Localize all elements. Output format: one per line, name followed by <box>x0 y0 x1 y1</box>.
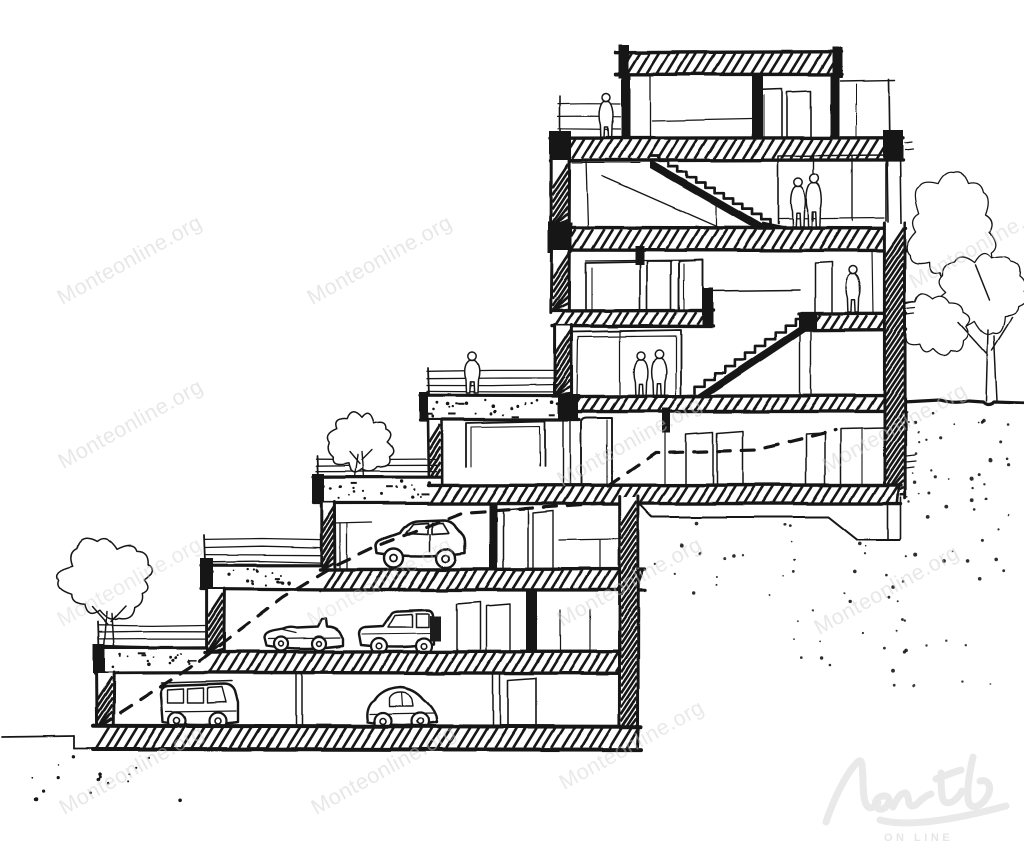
svg-text:ON LINE: ON LINE <box>884 832 953 844</box>
